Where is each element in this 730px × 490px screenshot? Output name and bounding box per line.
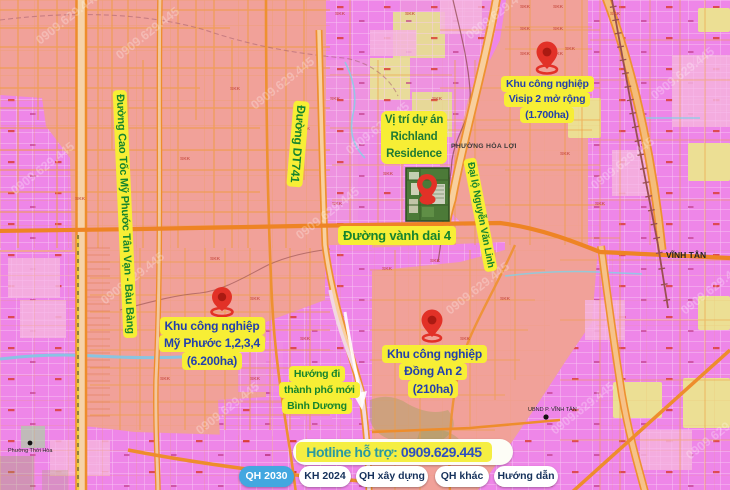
svg-text:SKK: SKK bbox=[565, 46, 576, 52]
svg-text:SKK: SKK bbox=[383, 171, 394, 177]
svg-text:SKK: SKK bbox=[300, 336, 311, 342]
svg-text:SKK: SKK bbox=[520, 26, 531, 32]
svg-text:SKK: SKK bbox=[160, 376, 171, 382]
svg-text:VĨNH TÂN: VĨNH TÂN bbox=[666, 249, 706, 260]
svg-text:SKK: SKK bbox=[382, 266, 393, 272]
svg-text:SKK: SKK bbox=[595, 201, 606, 207]
svg-text:SKK: SKK bbox=[230, 86, 241, 92]
svg-text:SKK: SKK bbox=[610, 11, 621, 17]
svg-text:Phường Thới Hòa: Phường Thới Hòa bbox=[8, 448, 53, 454]
svg-text:SKK: SKK bbox=[335, 11, 346, 17]
svg-text:SKK: SKK bbox=[75, 196, 86, 202]
svg-text:PHƯỜNG HÒA LỢI: PHƯỜNG HÒA LỢI bbox=[451, 141, 517, 150]
svg-text:SKK: SKK bbox=[460, 336, 471, 342]
svg-text:SKK: SKK bbox=[250, 296, 261, 302]
svg-text:SKK: SKK bbox=[405, 11, 416, 17]
svg-text:SKK: SKK bbox=[520, 51, 531, 57]
svg-text:SKK: SKK bbox=[430, 258, 441, 264]
svg-text:SKK: SKK bbox=[553, 4, 564, 10]
svg-text:SKK: SKK bbox=[553, 26, 564, 32]
svg-text:SKK: SKK bbox=[210, 256, 221, 262]
svg-text:SKK: SKK bbox=[432, 96, 443, 102]
svg-text:SKK: SKK bbox=[330, 96, 341, 102]
svg-text:SKK: SKK bbox=[180, 156, 191, 162]
svg-text:SKK: SKK bbox=[500, 296, 511, 302]
svg-text:SKK: SKK bbox=[560, 151, 571, 157]
svg-text:SKK: SKK bbox=[520, 4, 531, 10]
